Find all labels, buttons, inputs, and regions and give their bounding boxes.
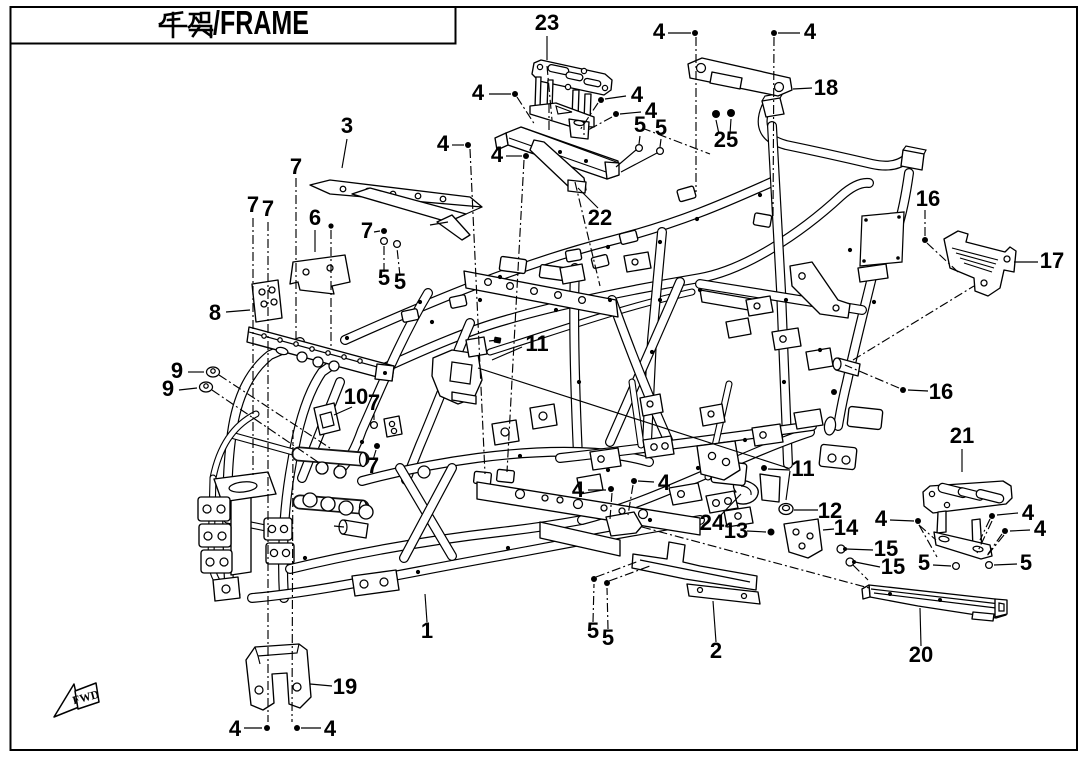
svg-text:22: 22 — [588, 205, 612, 230]
svg-text:10: 10 — [344, 384, 368, 409]
svg-text:7: 7 — [361, 218, 373, 243]
svg-text:24: 24 — [700, 510, 725, 535]
svg-text:21: 21 — [950, 423, 974, 448]
svg-text:4: 4 — [653, 19, 666, 44]
svg-text:13: 13 — [724, 518, 748, 543]
svg-text:7: 7 — [367, 453, 379, 478]
svg-text:11: 11 — [525, 331, 548, 356]
svg-text:7: 7 — [290, 154, 302, 179]
svg-text:5: 5 — [1020, 550, 1032, 575]
svg-text:4: 4 — [1034, 516, 1047, 541]
svg-text:2: 2 — [710, 638, 722, 663]
svg-text:4: 4 — [472, 80, 485, 105]
svg-text:4: 4 — [658, 470, 671, 495]
svg-text:15: 15 — [881, 554, 905, 579]
svg-text:7: 7 — [262, 196, 274, 221]
svg-text:4: 4 — [631, 82, 644, 107]
svg-text:16: 16 — [916, 186, 940, 211]
svg-text:5: 5 — [602, 625, 614, 650]
svg-text:3: 3 — [341, 113, 353, 138]
svg-text:4: 4 — [491, 142, 504, 167]
svg-text:7: 7 — [368, 390, 380, 415]
svg-text:5: 5 — [378, 265, 390, 290]
svg-text:4: 4 — [572, 477, 585, 502]
svg-text:5: 5 — [394, 269, 406, 294]
svg-text:4: 4 — [875, 506, 888, 531]
svg-text:5: 5 — [918, 550, 930, 575]
svg-text:9: 9 — [162, 376, 174, 401]
svg-text:14: 14 — [834, 515, 859, 540]
svg-text:4: 4 — [324, 716, 337, 741]
svg-text:7: 7 — [247, 192, 259, 217]
svg-text:23: 23 — [535, 10, 559, 35]
svg-text:4: 4 — [229, 716, 242, 741]
svg-text:5: 5 — [587, 618, 599, 643]
svg-text:11: 11 — [791, 456, 814, 481]
svg-text:4: 4 — [437, 131, 450, 156]
svg-text:4: 4 — [804, 19, 817, 44]
svg-text:1: 1 — [421, 618, 433, 643]
svg-text:25: 25 — [714, 127, 738, 152]
svg-text:6: 6 — [309, 205, 321, 230]
svg-text:5: 5 — [655, 115, 667, 140]
svg-text:17: 17 — [1040, 248, 1064, 273]
svg-text:5: 5 — [634, 112, 646, 137]
svg-text:16: 16 — [929, 379, 953, 404]
svg-text:18: 18 — [814, 75, 838, 100]
svg-text:8: 8 — [209, 300, 221, 325]
svg-text:19: 19 — [333, 674, 357, 699]
svg-text:/FRAME: /FRAME — [213, 4, 309, 41]
svg-text:20: 20 — [909, 642, 933, 667]
